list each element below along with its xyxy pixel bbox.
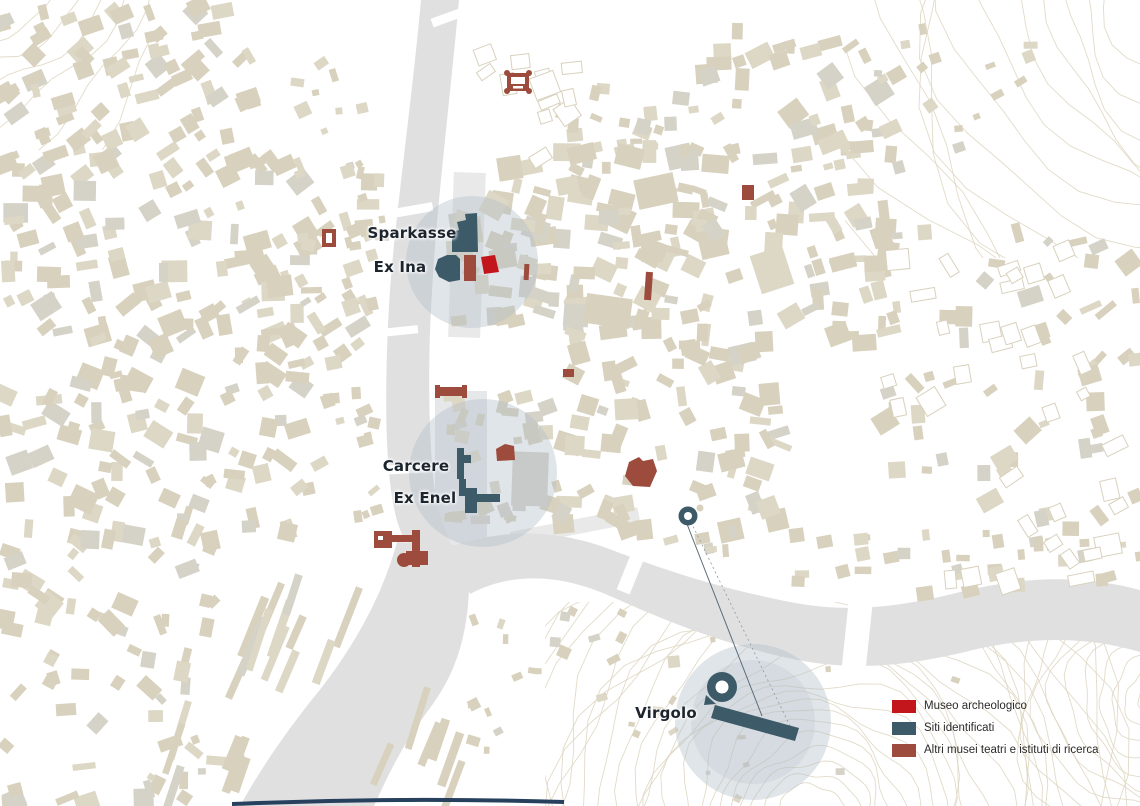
legend-item-museo-archeologico: Museo archeologico — [892, 700, 1098, 713]
cableway-base-site-hole — [684, 512, 692, 520]
brown-site — [524, 264, 530, 280]
map-graphics — [0, 0, 1140, 806]
map-label-sparkasse: Sparkasse — [368, 224, 457, 242]
legend-swatch-siti-identificati — [892, 722, 916, 735]
map-legend: Museo archeologico Siti identificati Alt… — [892, 700, 1098, 766]
map-label-carcere: Carcere — [383, 457, 450, 475]
river-southwest — [240, 542, 471, 806]
map-edge — [232, 800, 564, 804]
legend-label: Altri musei teatri e istituti di ricerca — [924, 744, 1098, 757]
map-label-ex-enel: Ex Enel — [394, 489, 457, 507]
buildings-layer — [0, 0, 1140, 806]
legend-item-altri-musei: Altri musei teatri e istituti di ricerca — [892, 744, 1098, 757]
legend-swatch-museo-archeologico — [892, 700, 916, 713]
brown-site — [742, 185, 754, 200]
bottom-blue-line — [232, 800, 564, 804]
brown-site — [563, 369, 574, 377]
map-label-ex-ina: Ex Ina — [374, 258, 427, 276]
city-map-canvas: Sparkasse Ex Ina Carcere Ex Enel Virgolo… — [0, 0, 1140, 806]
brown-site — [464, 255, 476, 281]
virgolo-station-site-hole — [716, 681, 729, 694]
legend-swatch-altri-musei — [892, 744, 916, 757]
legend-label: Museo archeologico — [924, 700, 1027, 713]
legend-item-siti-identificati: Siti identificati — [892, 722, 1098, 735]
legend-label: Siti identificati — [924, 722, 994, 735]
map-label-virgolo: Virgolo — [635, 704, 697, 722]
